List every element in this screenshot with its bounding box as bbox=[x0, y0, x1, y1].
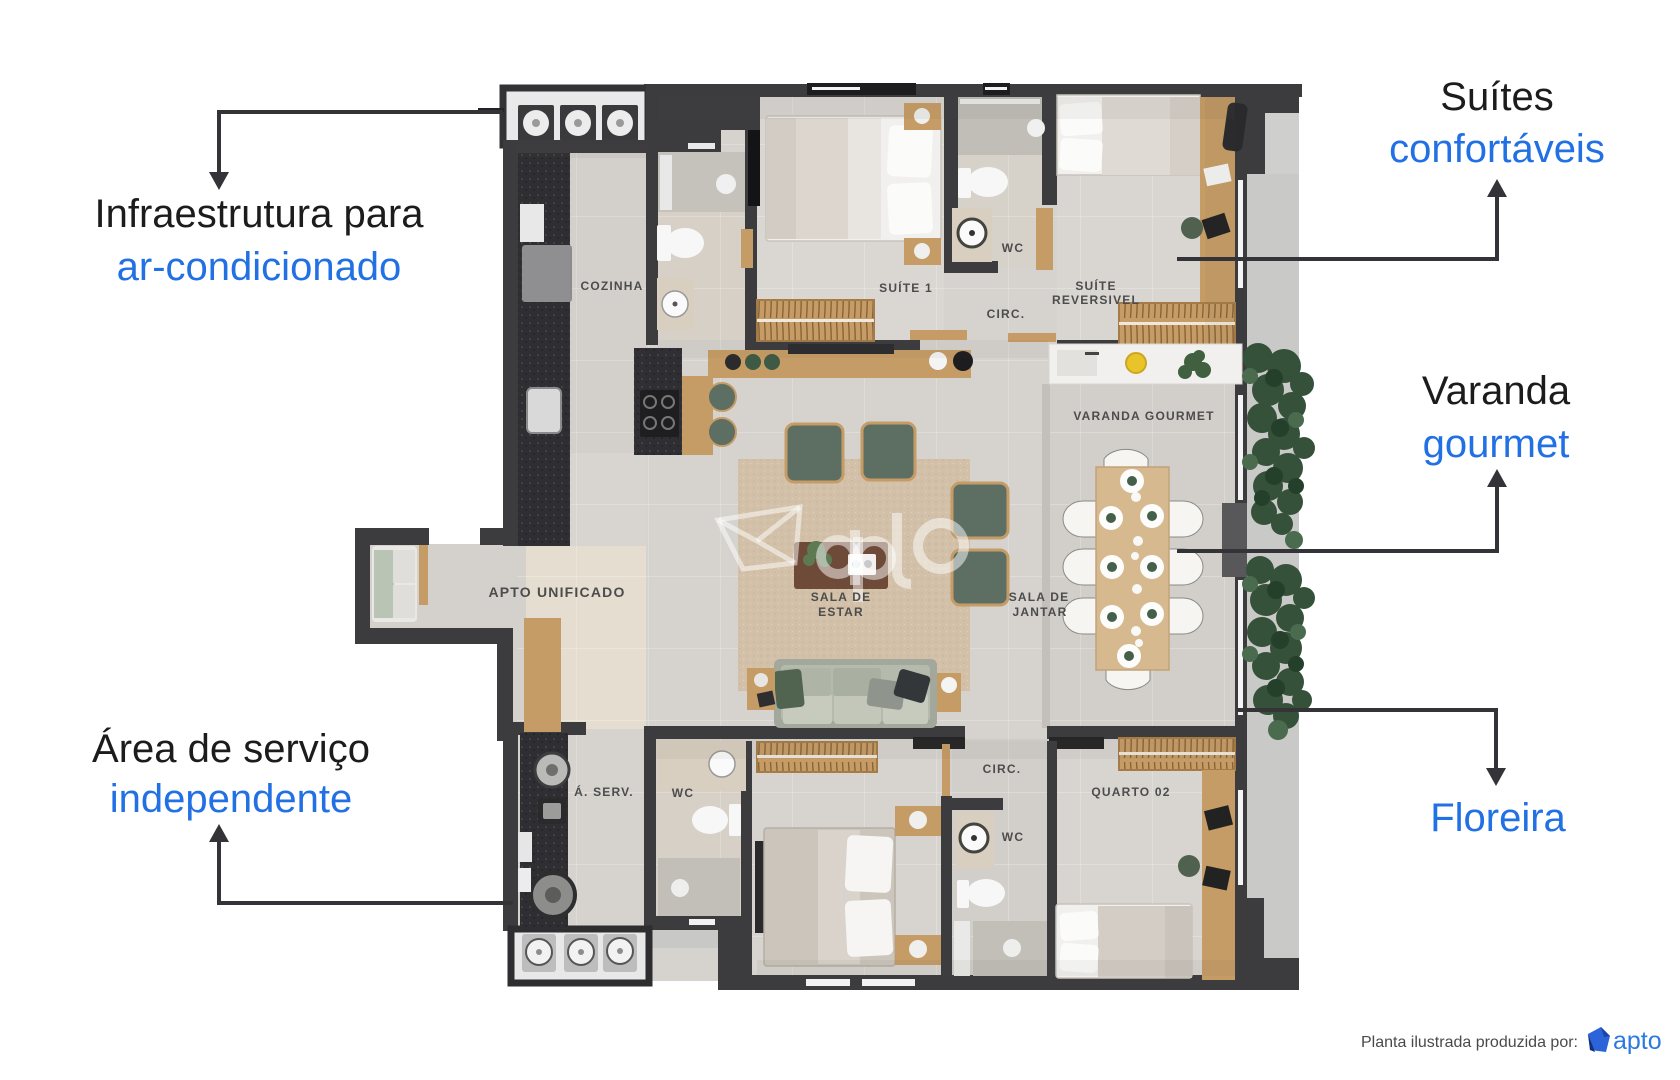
svg-text:REVERSIVEL: REVERSIVEL bbox=[1052, 293, 1140, 307]
svg-text:ar-condicionado: ar-condicionado bbox=[117, 245, 402, 289]
svg-text:Planta ilustrada produzida por: Planta ilustrada produzida por: bbox=[1361, 1034, 1578, 1051]
svg-text:Floreira: Floreira bbox=[1430, 796, 1566, 840]
svg-text:ESTAR: ESTAR bbox=[818, 605, 864, 619]
svg-text:VARANDA GOURMET: VARANDA GOURMET bbox=[1073, 409, 1214, 423]
svg-text:Á. SERV.: Á. SERV. bbox=[574, 784, 634, 799]
svg-text:independente: independente bbox=[110, 777, 352, 821]
svg-text:Área de serviço: Área de serviço bbox=[92, 726, 370, 771]
svg-text:QUARTO 02: QUARTO 02 bbox=[1091, 785, 1170, 799]
svg-text:WC: WC bbox=[672, 786, 694, 800]
svg-text:SALA DE: SALA DE bbox=[811, 590, 872, 604]
svg-text:CIRC.: CIRC. bbox=[983, 762, 1022, 776]
svg-text:SALA DE: SALA DE bbox=[1009, 590, 1070, 604]
svg-text:APTO UNIFICADO: APTO UNIFICADO bbox=[488, 584, 625, 600]
svg-text:WC: WC bbox=[1002, 241, 1024, 255]
svg-text:gourmet: gourmet bbox=[1423, 422, 1570, 466]
svg-text:confortáveis: confortáveis bbox=[1389, 127, 1605, 171]
svg-text:SUÍTE 1: SUÍTE 1 bbox=[879, 280, 933, 295]
svg-text:CIRC.: CIRC. bbox=[987, 307, 1026, 321]
svg-text:COZINHA: COZINHA bbox=[580, 279, 643, 293]
svg-text:apto: apto bbox=[1613, 1027, 1662, 1055]
svg-text:Varanda: Varanda bbox=[1422, 369, 1571, 413]
svg-text:WC: WC bbox=[1002, 830, 1024, 844]
svg-text:JANTAR: JANTAR bbox=[1013, 605, 1068, 619]
svg-text:SUÍTE: SUÍTE bbox=[1075, 278, 1116, 293]
svg-text:Suítes: Suítes bbox=[1440, 75, 1553, 119]
svg-text:Infraestrutura para: Infraestrutura para bbox=[94, 192, 424, 236]
